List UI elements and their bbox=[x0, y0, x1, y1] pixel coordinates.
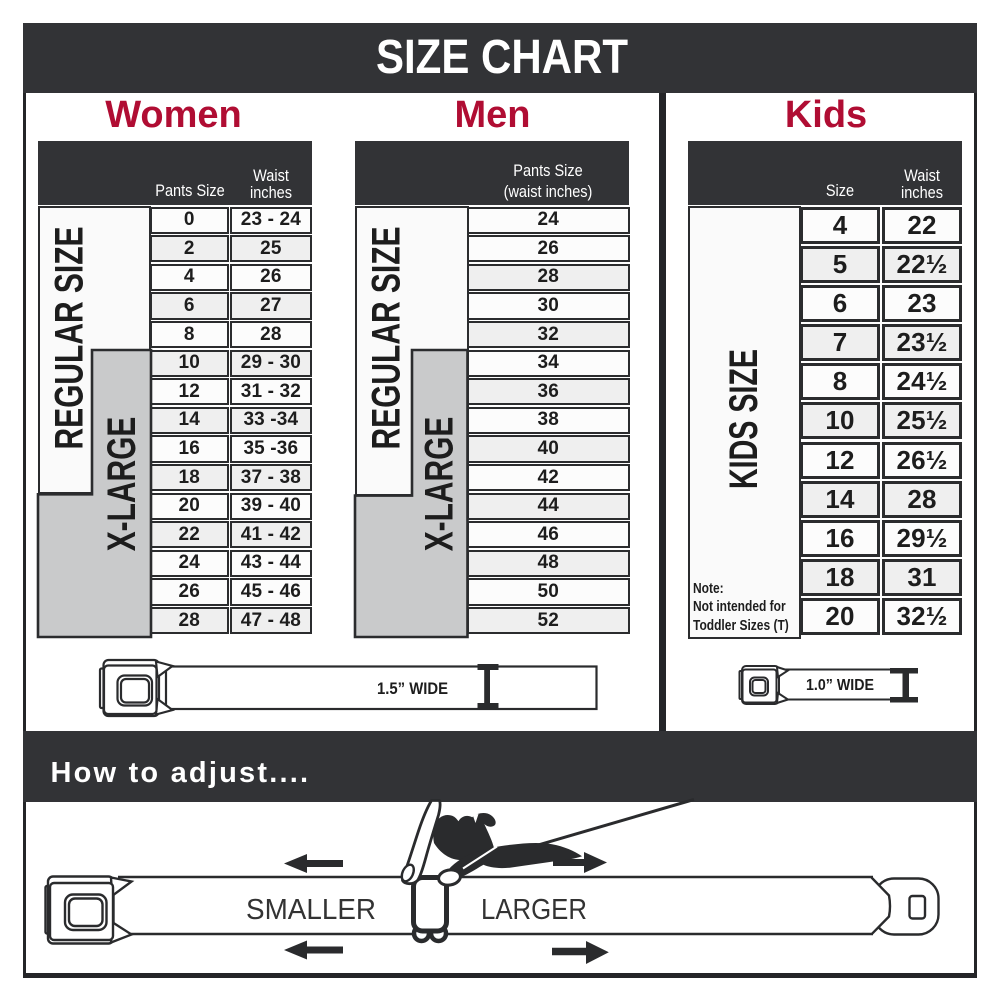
svg-text:REGULAR SIZE: REGULAR SIZE bbox=[365, 227, 409, 450]
svg-text:KIDS SIZE: KIDS SIZE bbox=[722, 349, 766, 489]
svg-text:1.0” WIDE: 1.0” WIDE bbox=[806, 677, 874, 694]
svg-text:1.5” WIDE: 1.5” WIDE bbox=[377, 679, 448, 698]
svg-text:X-LARGE: X-LARGE bbox=[418, 417, 462, 552]
svg-text:X-LARGE: X-LARGE bbox=[100, 417, 144, 552]
svg-text:LARGER: LARGER bbox=[481, 894, 587, 926]
svg-text:SIZE CHART: SIZE CHART bbox=[376, 31, 628, 84]
svg-text:REGULAR SIZE: REGULAR SIZE bbox=[48, 227, 92, 450]
svg-text:SMALLER: SMALLER bbox=[246, 894, 376, 926]
